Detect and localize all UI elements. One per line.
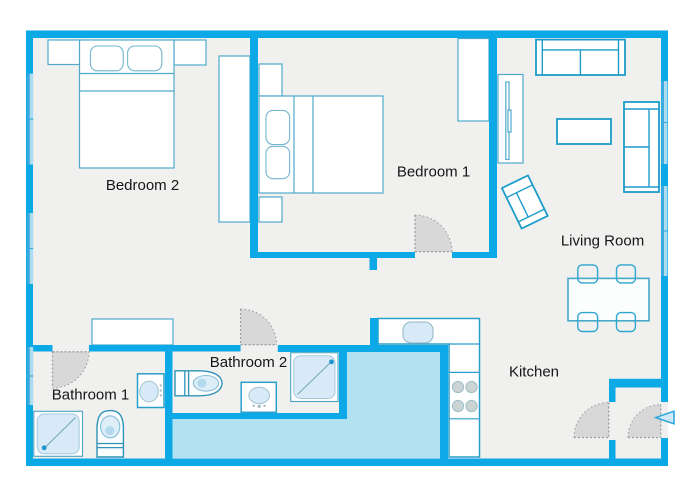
svg-text:Bedroom 1: Bedroom 1 <box>397 164 470 181</box>
svg-text:Bathroom 1: Bathroom 1 <box>52 387 130 404</box>
svg-text:Living Room: Living Room <box>561 233 644 250</box>
svg-text:Bathroom 2: Bathroom 2 <box>210 354 288 371</box>
svg-text:Bedroom 2: Bedroom 2 <box>106 177 179 194</box>
svg-text:Kitchen: Kitchen <box>509 364 559 381</box>
